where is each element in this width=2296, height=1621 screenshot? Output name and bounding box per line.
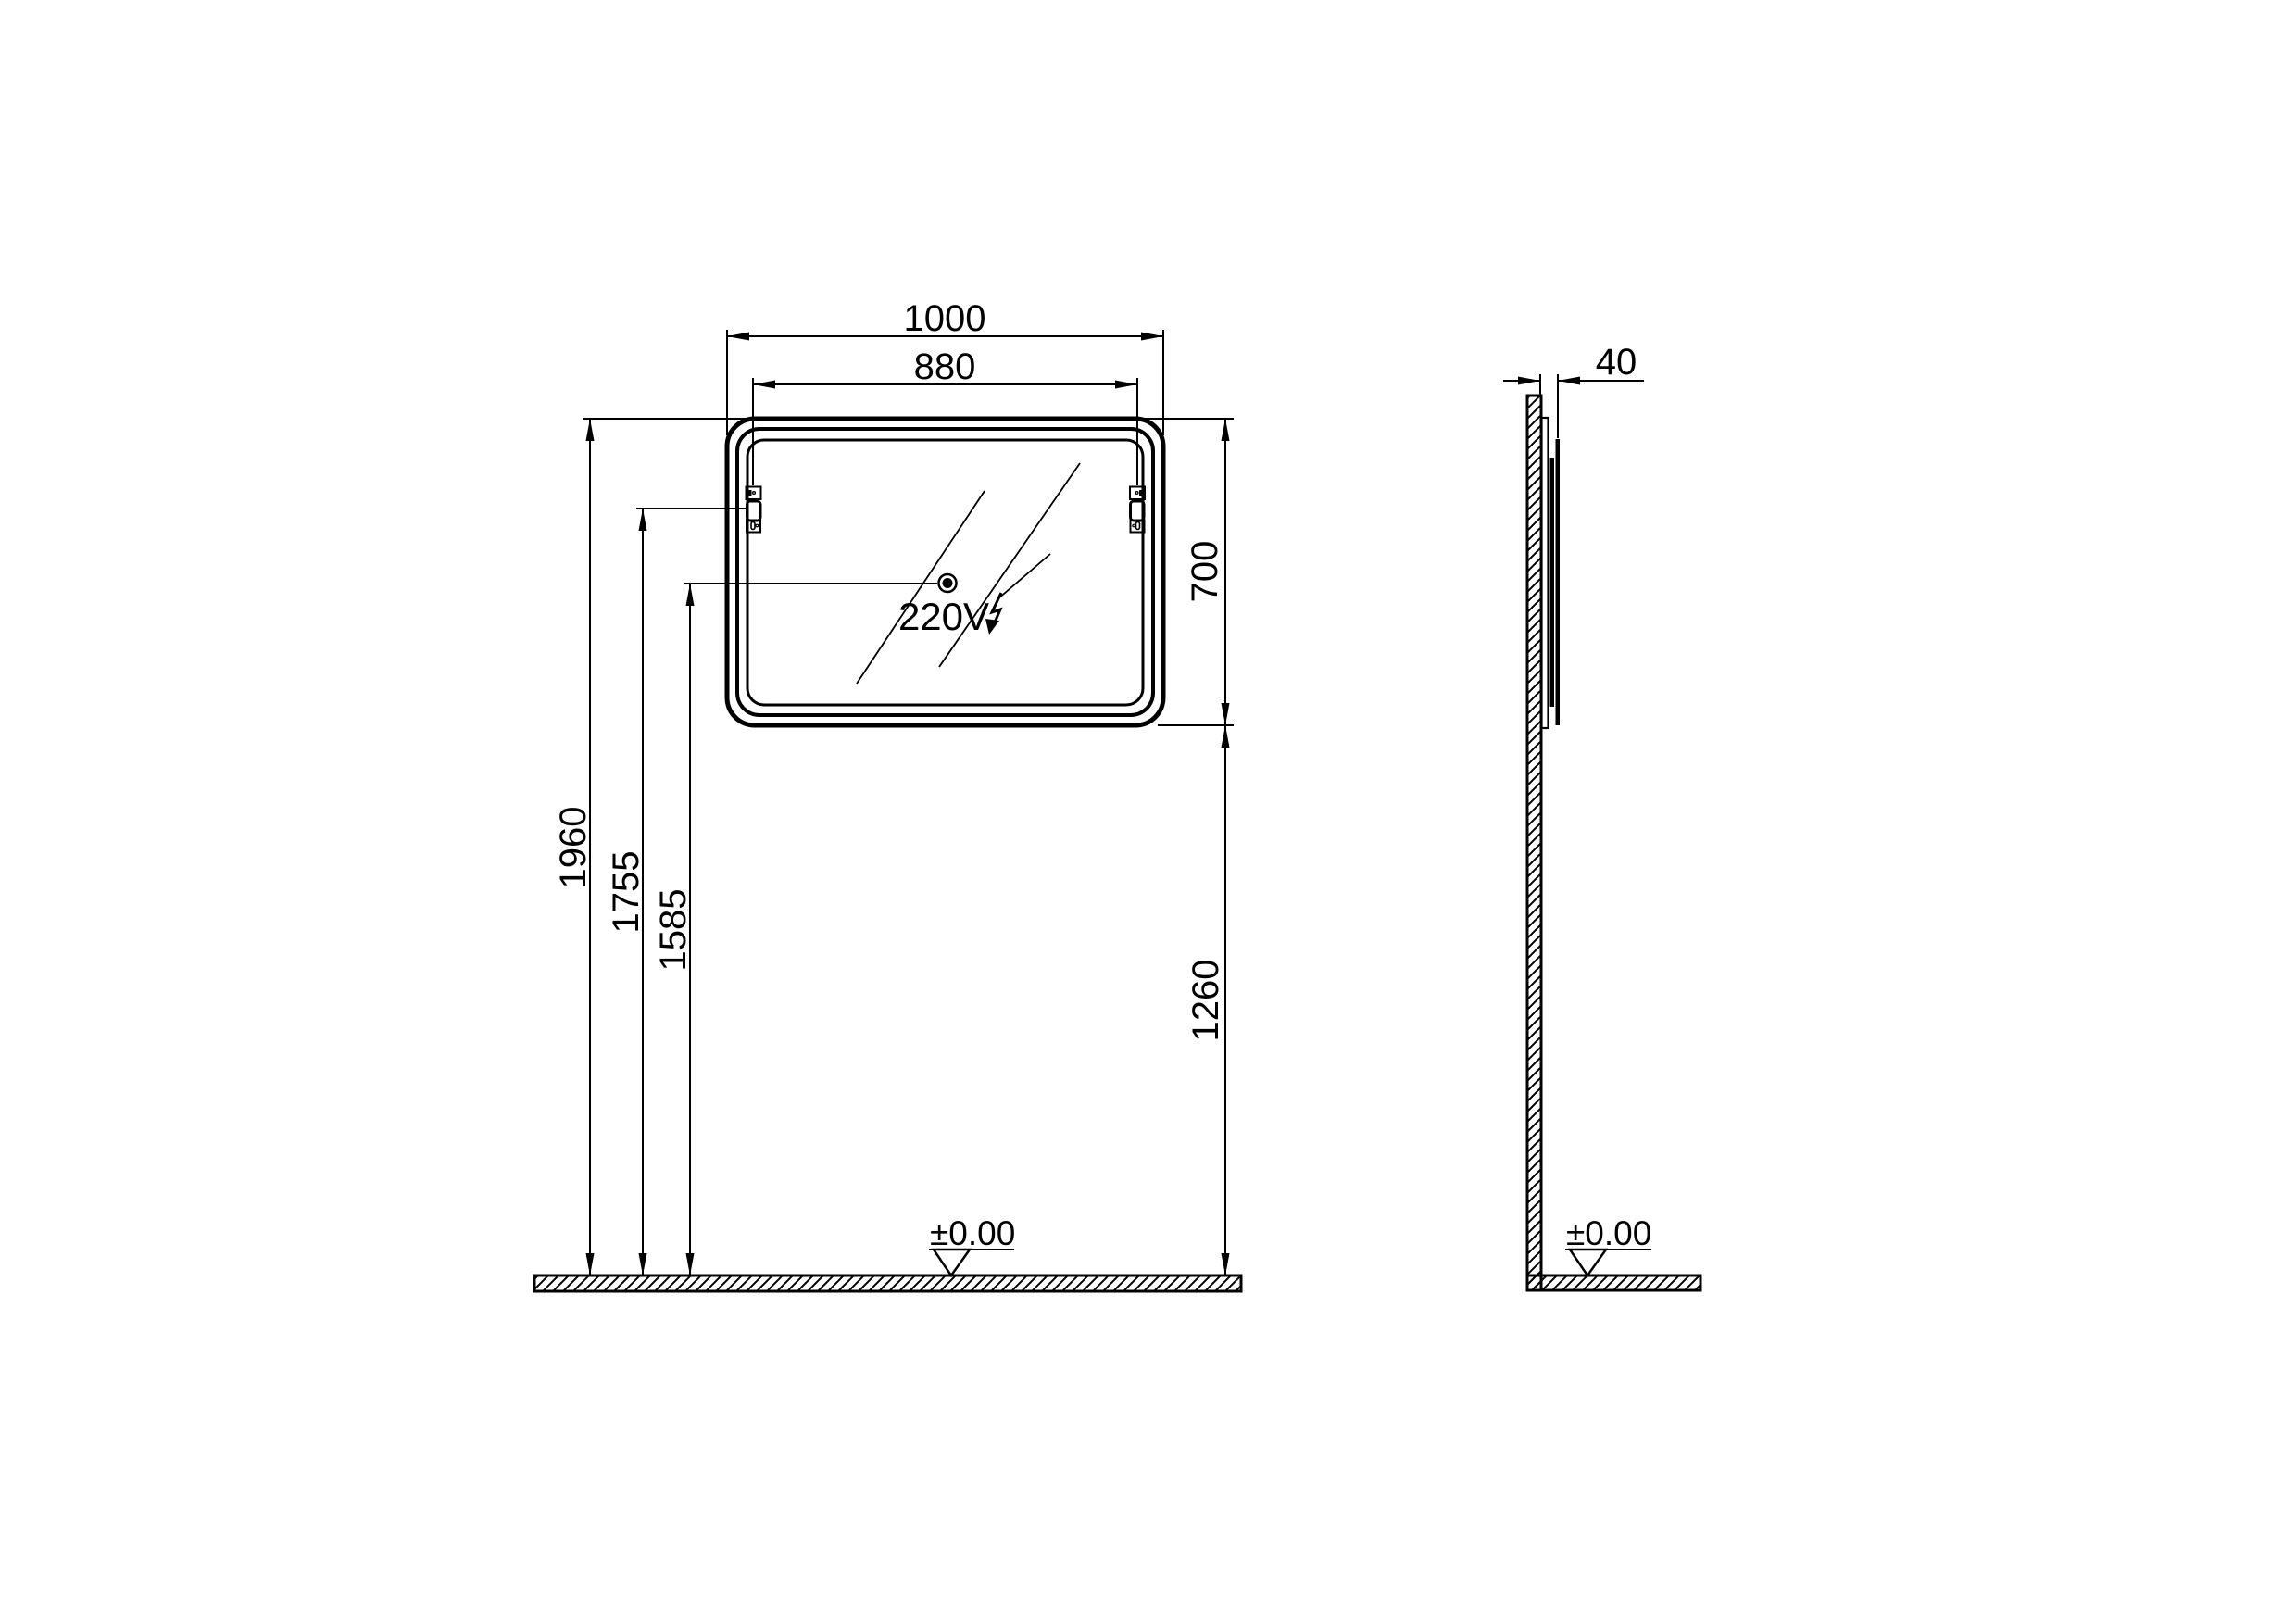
dim-arrow	[1222, 725, 1230, 748]
dim-arrow	[1222, 419, 1230, 441]
depth-dim: 40	[1503, 342, 1644, 438]
drawing-canvas: ±0.00 1000 880 1960 1755 1585 700 1260 2…	[0, 0, 2296, 1621]
dim-arrow	[639, 509, 647, 531]
dim-arrow	[1141, 333, 1163, 341]
power-label: 220V	[898, 595, 989, 638]
mirror-side-bracket	[1542, 418, 1549, 728]
front-view: ±0.00 1000 880 1960 1755 1585 700 1260 2…	[534, 298, 1241, 1291]
dim-arrow	[686, 584, 695, 606]
level-marker-front: ±0.00	[929, 1214, 1015, 1275]
dim-arrow	[1558, 377, 1580, 385]
dim-arrow	[1518, 377, 1540, 385]
level-marker-icon	[1570, 1250, 1606, 1275]
dim-total-width: 1000	[904, 298, 986, 339]
mirror-side-glass	[1550, 458, 1555, 707]
level-marker-icon	[934, 1250, 970, 1275]
dim-mirror-height: 700	[1185, 541, 1225, 603]
dim-outlet-height: 1585	[653, 889, 694, 972]
mirror-side-panel	[1556, 439, 1561, 725]
dim-arrow	[586, 419, 595, 441]
ground-front	[534, 1275, 1241, 1291]
dim-bracket-height: 1755	[606, 851, 646, 934]
cad-drawing: ±0.00 1000 880 1960 1755 1585 700 1260 2…	[0, 0, 2296, 1621]
power-outlet-point	[939, 574, 957, 592]
dim-arrow	[586, 1253, 595, 1275]
floor-section	[1527, 1275, 1700, 1290]
dim-arrow	[727, 333, 749, 341]
level-label-front: ±0.00	[930, 1214, 1015, 1252]
level-marker-side: ±0.00	[1565, 1214, 1651, 1275]
dim-arrow	[639, 1253, 647, 1275]
dim-arrow	[1222, 703, 1230, 725]
dim-arrow	[1115, 381, 1137, 389]
mirror-outer-frame	[727, 419, 1163, 725]
side-view: 40 ±0.00	[1503, 342, 1700, 1290]
dim-bracket-width: 880	[914, 346, 976, 387]
wall-section	[1527, 396, 1541, 1290]
mirror-side-profile	[1542, 418, 1561, 728]
dim-below-height: 1260	[1186, 960, 1226, 1042]
dim-arrow	[1222, 1253, 1230, 1275]
mirror-front	[727, 419, 1163, 725]
dim-top-height: 1960	[553, 807, 594, 889]
level-label-side: ±0.00	[1566, 1214, 1651, 1252]
dim-arrow	[686, 1253, 695, 1275]
dim-depth: 40	[1596, 342, 1637, 383]
dim-arrow	[753, 381, 775, 389]
